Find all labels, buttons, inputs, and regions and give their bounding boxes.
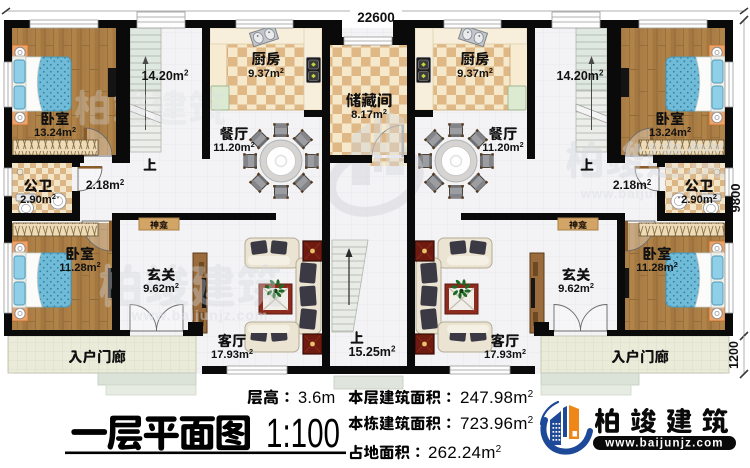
- svg-text:262.24m2: 262.24m2: [428, 443, 502, 462]
- svg-text:13.24m2: 13.24m2: [34, 125, 76, 139]
- svg-text:17.93m2: 17.93m2: [484, 347, 526, 361]
- svg-text:9.37m2: 9.37m2: [457, 66, 493, 80]
- svg-text:17.93m2: 17.93m2: [211, 347, 253, 361]
- svg-text:2.18m2: 2.18m2: [86, 178, 125, 192]
- svg-text:www.baijunjz.com: www.baijunjz.com: [131, 307, 269, 323]
- svg-text:15.25m2: 15.25m2: [349, 345, 396, 359]
- svg-text:1200: 1200: [727, 341, 741, 369]
- svg-text:14.20m2: 14.20m2: [142, 69, 189, 83]
- svg-text:2.18m2: 2.18m2: [613, 178, 652, 192]
- svg-text:2.90m2: 2.90m2: [681, 192, 717, 206]
- svg-text:www.baijunjz.com: www.baijunjz.com: [604, 438, 723, 450]
- svg-text:2.90m2: 2.90m2: [20, 192, 56, 206]
- svg-text:9.62m2: 9.62m2: [143, 281, 179, 295]
- svg-text:247.98m2: 247.98m2: [460, 388, 534, 407]
- svg-text:11.28m2: 11.28m2: [59, 260, 100, 274]
- svg-text:22600: 22600: [357, 10, 395, 25]
- svg-text:3.6m: 3.6m: [298, 389, 335, 407]
- svg-text:9800: 9800: [728, 184, 743, 213]
- svg-text:9.37m2: 9.37m2: [248, 66, 284, 80]
- svg-text:1:100: 1:100: [266, 410, 340, 456]
- svg-text:9.62m2: 9.62m2: [558, 281, 594, 295]
- svg-text:11.28m2: 11.28m2: [636, 260, 677, 274]
- svg-text:723.96m2: 723.96m2: [460, 414, 534, 433]
- svg-text:11.20m2: 11.20m2: [213, 140, 254, 154]
- svg-text:8.17m2: 8.17m2: [351, 107, 387, 121]
- svg-text:13.24m2: 13.24m2: [649, 125, 691, 139]
- svg-text:11.20m2: 11.20m2: [482, 140, 523, 154]
- svg-text:14.20m2: 14.20m2: [557, 69, 604, 83]
